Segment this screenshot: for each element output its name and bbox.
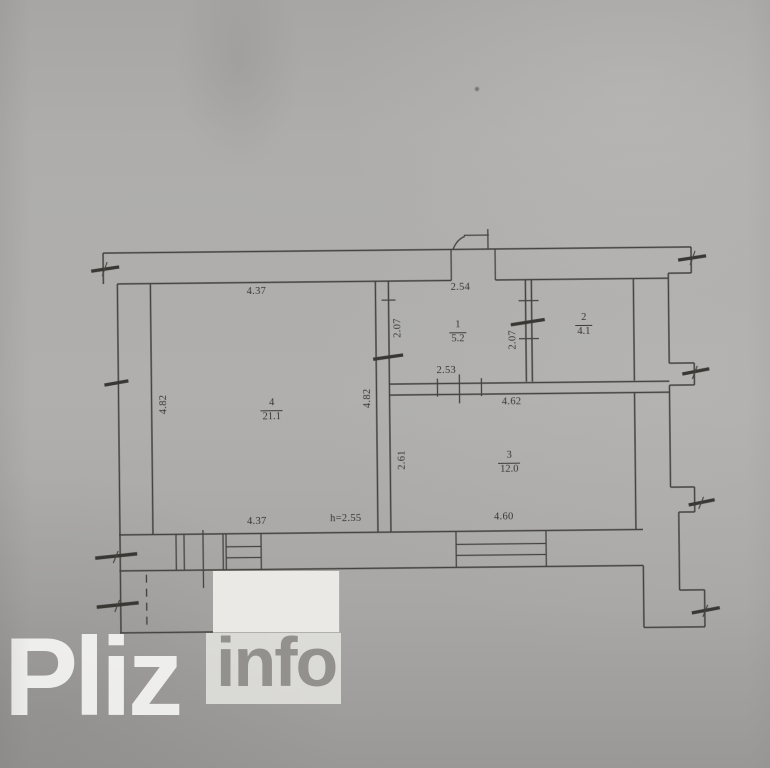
dimension-room4-left: 4.82 <box>158 395 169 415</box>
room2-area: 4.1 <box>575 324 592 338</box>
paper-speck <box>475 87 479 91</box>
room3-area: 12.0 <box>498 462 521 476</box>
room3-label: 3 12.0 <box>498 450 521 476</box>
watermark-pliz: Pliz <box>4 622 179 733</box>
room2-label: 2 4.1 <box>575 312 592 338</box>
walls <box>103 247 705 633</box>
dimension-room3-bottom: 4.60 <box>494 511 514 522</box>
dimension-room1-left: 2.07 <box>392 318 403 338</box>
room4-label: 4 21.1 <box>260 397 283 423</box>
room4-area: 21.1 <box>260 410 283 424</box>
dimension-room1-top: 2.54 <box>451 282 471 293</box>
dimension-room1-right: 2.07 <box>507 330 518 350</box>
room1-area: 5.2 <box>449 332 466 346</box>
room2-number: 2 <box>579 312 588 325</box>
room1-number: 1 <box>453 319 462 332</box>
room1-label: 1 5.2 <box>449 319 466 345</box>
window-symbols <box>226 530 546 569</box>
room4-number: 4 <box>267 397 276 410</box>
ceiling-height-label: h=2.55 <box>330 513 361 524</box>
dimension-room4-right: 4.82 <box>362 388 373 408</box>
dimension-room3-top: 4.62 <box>502 396 522 407</box>
dimension-room1-bottom: 2.53 <box>436 365 456 376</box>
interior-door-jambs <box>382 299 540 405</box>
dimension-room4-bottom: 4.37 <box>247 516 267 527</box>
photo-background: 4.37 2.54 2.07 2.07 4.82 4.82 2.53 4.62 … <box>0 0 770 768</box>
watermark-info-box: info <box>206 633 341 704</box>
watermark-info: info <box>216 627 336 697</box>
dimension-room4-top: 4.37 <box>247 286 267 297</box>
dimension-room3-left: 2.61 <box>397 450 408 470</box>
entrance-door-swing <box>451 229 496 280</box>
room3-number: 3 <box>504 450 513 463</box>
